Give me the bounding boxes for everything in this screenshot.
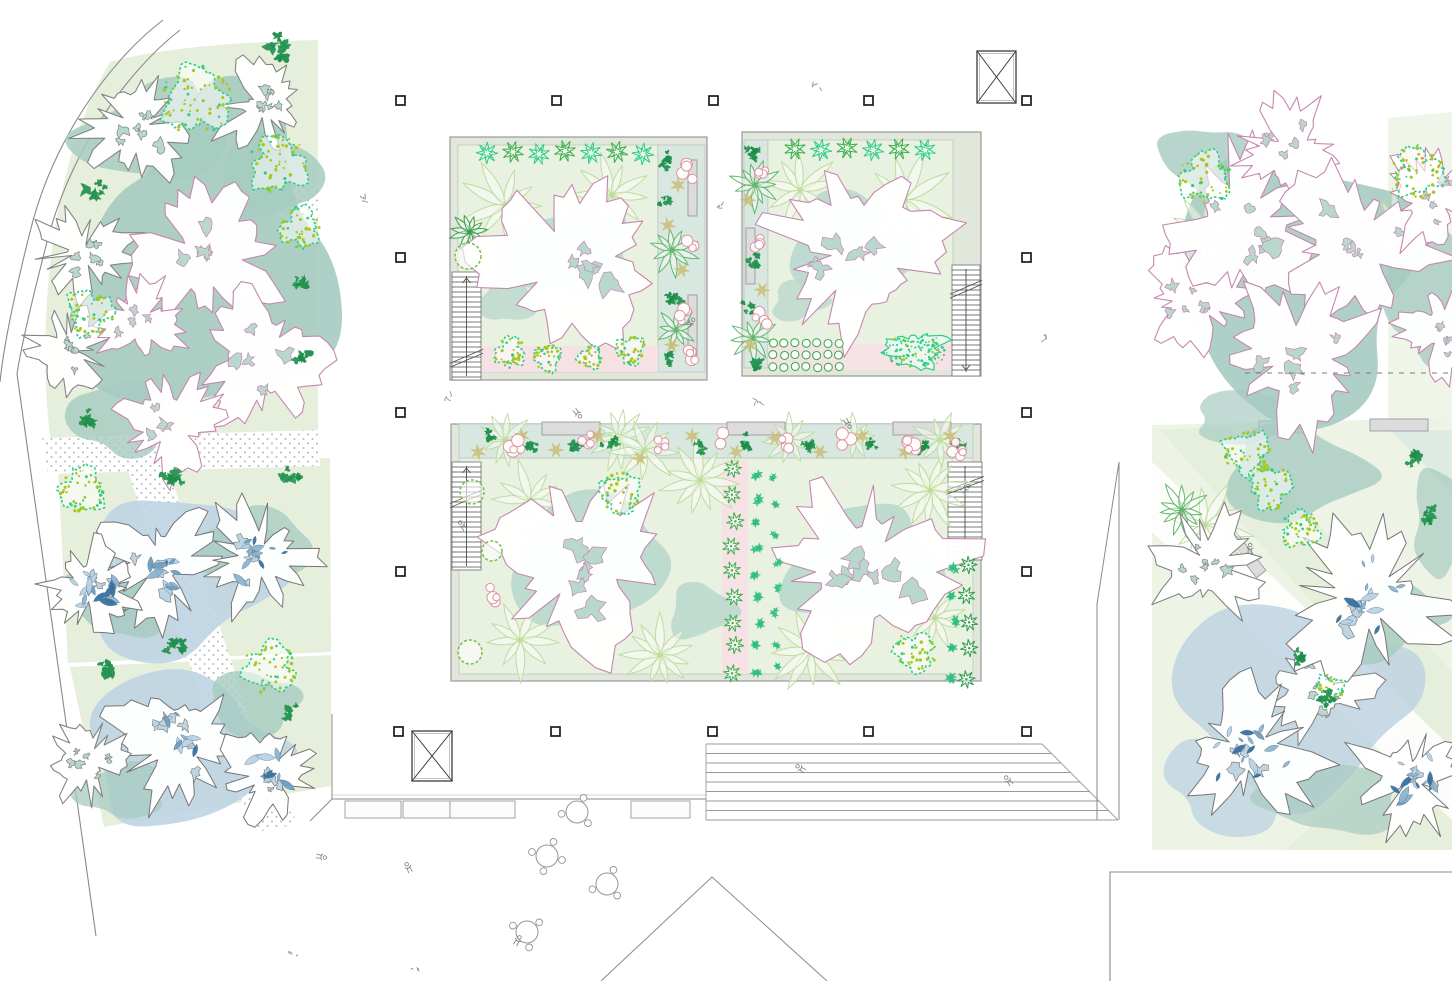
stair-courtyard-c-left	[450, 462, 483, 570]
person	[1002, 774, 1014, 787]
plan-drawing	[0, 0, 1452, 981]
ocircle	[482, 541, 502, 561]
building-below	[1110, 872, 1452, 981]
ocircle	[455, 243, 481, 269]
ocircle	[460, 480, 484, 504]
sprig	[812, 82, 822, 91]
landscape-plan	[0, 0, 1452, 981]
amphitheater-steps	[706, 744, 1118, 820]
sprig	[1041, 334, 1047, 342]
facade-planter	[631, 801, 690, 818]
bench	[746, 228, 755, 284]
square	[1022, 727, 1031, 736]
square	[396, 253, 405, 262]
person	[315, 853, 327, 862]
table	[529, 839, 566, 875]
ramp-edge	[1097, 462, 1119, 820]
square	[396, 408, 405, 417]
sprig	[753, 398, 764, 405]
facade-planter	[345, 801, 401, 818]
person	[572, 407, 584, 420]
square	[1022, 567, 1031, 576]
sprig	[288, 952, 298, 957]
facade-planter	[450, 801, 515, 818]
pinkc	[754, 167, 768, 179]
square	[709, 96, 718, 105]
square	[396, 567, 405, 576]
square	[396, 96, 405, 105]
sprig	[411, 967, 420, 971]
stair-courtyard-a	[450, 272, 483, 380]
square	[1022, 253, 1031, 262]
table	[589, 867, 621, 899]
bench	[1370, 419, 1428, 431]
bench	[727, 422, 785, 435]
plan-scene	[0, 20, 1452, 981]
stair-courtyard-b	[950, 265, 982, 376]
square	[552, 96, 561, 105]
sprig	[445, 391, 452, 400]
square	[394, 727, 403, 736]
facade-planter	[403, 801, 450, 818]
table	[510, 919, 543, 951]
square	[1022, 408, 1031, 417]
square	[708, 727, 717, 736]
sprig	[717, 202, 723, 209]
square	[1022, 96, 1031, 105]
square	[551, 727, 560, 736]
shaft-skylight	[412, 731, 452, 781]
sprig	[360, 193, 368, 202]
person	[403, 861, 414, 874]
square	[864, 96, 873, 105]
shaft-skylight	[977, 51, 1016, 103]
roof-ridge	[601, 877, 827, 981]
ocircle	[458, 640, 482, 664]
shrub	[476, 142, 498, 164]
square	[864, 727, 873, 736]
